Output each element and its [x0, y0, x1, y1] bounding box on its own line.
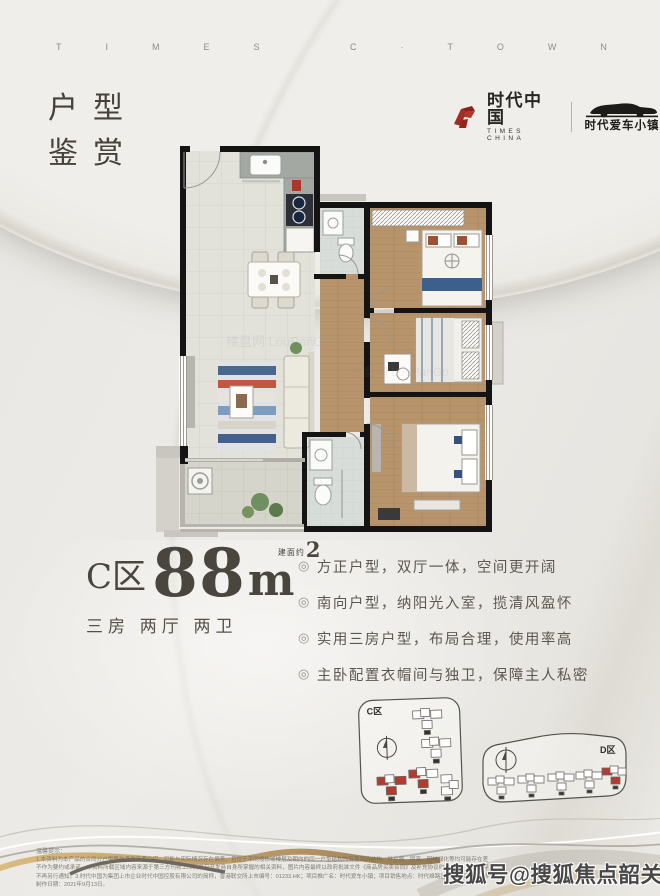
feature-text: 南向户型，纳阳光入室，揽清风盈怀 — [317, 592, 573, 613]
feature-item: ◎ 实用三房户型，布局合理，使用率高 — [298, 628, 589, 649]
bathroom2-vanity — [310, 440, 332, 470]
feature-text: 实用三房户型，布局合理，使用率高 — [317, 628, 573, 649]
top-banner-letters: TIMES C·TOWN — [56, 42, 651, 52]
tv-cabinet — [187, 356, 195, 428]
feature-item: ◎ 主卧配置衣帽间与独卫，保障主人私密 — [298, 664, 589, 685]
brand-lockup: 时代中国 TIMES CHINA 时代爱车小镇 — [452, 92, 660, 142]
master-console — [378, 508, 400, 520]
disclaimer-line: 不作为要约或承诺，本资料所载区域内容来源于第三方刊物上印刷之日开发商自身所掌握的… — [36, 864, 488, 872]
poster-page: TIMES C·TOWN 户型 鉴赏 时代中国 TIMES CHINA 时代爱车… — [0, 0, 660, 896]
disclaimer: 温馨提示： 1.本资料为本产品的合同分户型等信息做简要介绍，可能与实际情况存在偏… — [36, 846, 488, 890]
sub-brand: 时代爱车小镇 — [584, 102, 660, 133]
bedroom1-wardrobe — [372, 210, 464, 226]
sohu-watermark: 搜狐号@搜狐焦点韶关站 — [443, 858, 660, 889]
keyplan-c-label: C区 — [366, 706, 382, 717]
brand-names: 时代中国 TIMES CHINA — [487, 92, 559, 142]
unit-area-unit: m 建面约 2 — [248, 561, 295, 601]
page-title-line1: 户型 — [48, 86, 138, 131]
disclaimer-title: 温馨提示： — [36, 846, 488, 855]
hallway-floor — [320, 274, 364, 432]
disclaimer-line: 1.本资料为本产品的合同分户型等信息做简要介绍，可能与实际情况存在偏差，且位于不… — [36, 856, 488, 864]
bed-bench — [414, 500, 460, 510]
plan-watermark-text2: 楼盘网 LouPanGo — [352, 364, 449, 379]
sub-brand-name: 时代爱车小镇 — [585, 121, 660, 133]
balcony-plant — [251, 493, 269, 511]
bathroom2-toilet — [315, 485, 331, 505]
feature-text: 方正户型，双厅一体，空间更开阔 — [317, 556, 557, 577]
brand-divider — [571, 102, 572, 132]
car-logo-icon — [584, 102, 660, 119]
feature-text: 主卧配置衣帽间与独卫，保障主人私密 — [317, 664, 589, 685]
bullet-icon: ◎ — [298, 592, 311, 611]
kitchen-sink — [250, 155, 281, 175]
plan-watermark-text: 楼盘网 LouPanGo — [226, 334, 331, 349]
feature-item: ◎ 南向户型，纳阳光入室，揽清风盈怀 — [298, 592, 589, 613]
bathroom1-vanity — [323, 211, 343, 235]
times-china-logo-icon — [452, 104, 478, 131]
brand-name-cn: 时代中国 — [487, 92, 559, 126]
page-title-line2: 鉴赏 — [48, 131, 138, 176]
feature-item: ◎ 方正户型，双厅一体，空间更开阔 — [298, 556, 589, 577]
bullet-icon: ◎ — [298, 556, 311, 575]
keyplan-d-label: D区 — [600, 745, 616, 755]
unit-area-note: 建面约 — [278, 549, 305, 556]
feature-list: ◎ 方正户型，双厅一体，空间更开阔 ◎ 南向户型，纳阳光入室，揽清风盈怀 ◎ 实… — [298, 556, 589, 700]
unit-rooms: 三房 两厅 两卫 — [86, 612, 294, 637]
disclaimer-line: 制作日期：2021年9月13日。 — [36, 881, 488, 889]
unit-area-number: 88 — [152, 546, 246, 600]
unit-headline: C区 88 m 建面约 2 三房 两厅 两卫 — [86, 546, 294, 637]
floor-plan: 楼盘网 LouPanGo 楼盘网 LouPanGo — [156, 140, 510, 538]
bullet-icon: ◎ — [298, 628, 311, 647]
disclaimer-line: 不再另行通知。3.时代中国为集团上市企业时代中国控股有限公司的简称，香港联交所上… — [36, 873, 488, 881]
bullet-icon: ◎ — [298, 664, 311, 683]
unit-zone: C区 — [86, 560, 146, 600]
page-title: 户型 鉴赏 — [48, 86, 138, 176]
kitchen-accent — [292, 180, 301, 191]
